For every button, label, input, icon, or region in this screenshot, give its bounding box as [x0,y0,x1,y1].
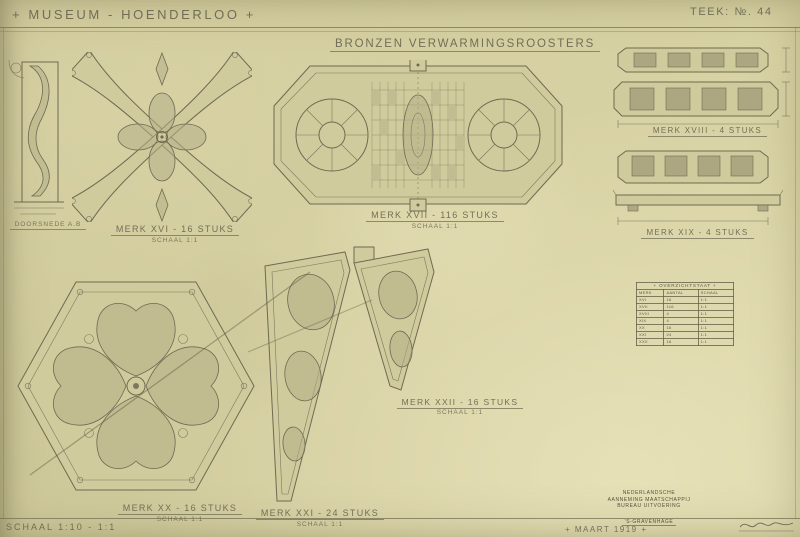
merk-xvii-label: MERK XVII - 116 STUKS [340,210,530,222]
table-row: XVIII41:1 [637,311,734,318]
main-title-text: BRONZEN VERWARMINGSROOSTERS [330,38,600,52]
merk-xxii-drawing [344,243,444,395]
scale-note: SCHAAL 1:10 - 1:1 [6,522,116,532]
frame-top-line [0,27,800,28]
table-header: AANTAL [664,290,698,297]
merk-xxi-scale: SCHAAL 1:1 [245,521,395,528]
merk-xx-scale: SCHAAL 1:1 [95,516,265,523]
drawing-sheet: + MUSEUM - HOENDERLOO + TEEK: №. 44 BRON… [0,0,800,537]
sheet-title-text: + MUSEUM - HOENDERLOO + [12,7,256,22]
merk-xvi-label: MERK XVI - 16 STUKS [90,224,260,236]
merk-xxi-label: MERK XXI - 24 STUKS [245,508,395,520]
merk-xvii-drawing [268,60,568,212]
merk-xx-drawing [8,266,260,508]
table-header: MERK [637,290,664,297]
main-title: BRONZEN VERWARMINGSROOSTERS [330,38,555,52]
stamp-line: BUREAU UITVOERING [593,503,705,510]
company-stamp: NEDERLANDSCHE AANNEMING MAATSCHAPPIJ BUR… [593,490,705,528]
table-row: XVI161:1 [637,297,734,304]
drawing-number-text: TEEK: №. 44 [690,6,773,18]
merk-xxii-scale: SCHAAL 1:1 [385,409,535,416]
table-header: SCHAAL [698,290,733,297]
section-label: DOORSNEDE A.B [2,221,94,230]
merk-xxi-drawing [253,248,358,506]
table-row: XIX41:1 [637,318,734,325]
table-row: XX161:1 [637,325,734,332]
frame-top-line-2 [0,31,800,32]
date-label: + MAART 1919 + [565,525,648,534]
table-row: XXI241:1 [637,332,734,339]
merk-xx-label: MERK XX - 16 STUKS [95,503,265,515]
drawing-number: TEEK: №. 44 [690,6,773,18]
merk-xvi-drawing [72,52,252,222]
merk-xviii-drawing [610,38,798,132]
merk-xvi-scale: SCHAAL 1:1 [90,237,260,244]
merk-xix-drawing [612,143,800,235]
frame-left-line [3,27,4,519]
merk-xxii-label: MERK XXII - 16 STUKS [385,397,535,409]
sheet-title: + MUSEUM - HOENDERLOO + [12,7,256,22]
overview-table: + OVERZICHTSTAAT + MERK AANTAL SCHAAL XV… [636,282,734,346]
table-title: + OVERZICHTSTAAT + [637,283,734,290]
table-row: XVII1161:1 [637,304,734,311]
merk-xviii-label: MERK XVIII - 4 STUKS [630,126,785,137]
section-drawing [6,56,68,222]
merk-xix-label: MERK XIX - 4 STUKS [620,228,775,239]
merk-xvii-scale: SCHAAL 1:1 [340,223,530,230]
signature-handwriting [738,516,796,536]
table-row: XXII161:1 [637,339,734,346]
table-header-row: MERK AANTAL SCHAAL [637,290,734,297]
